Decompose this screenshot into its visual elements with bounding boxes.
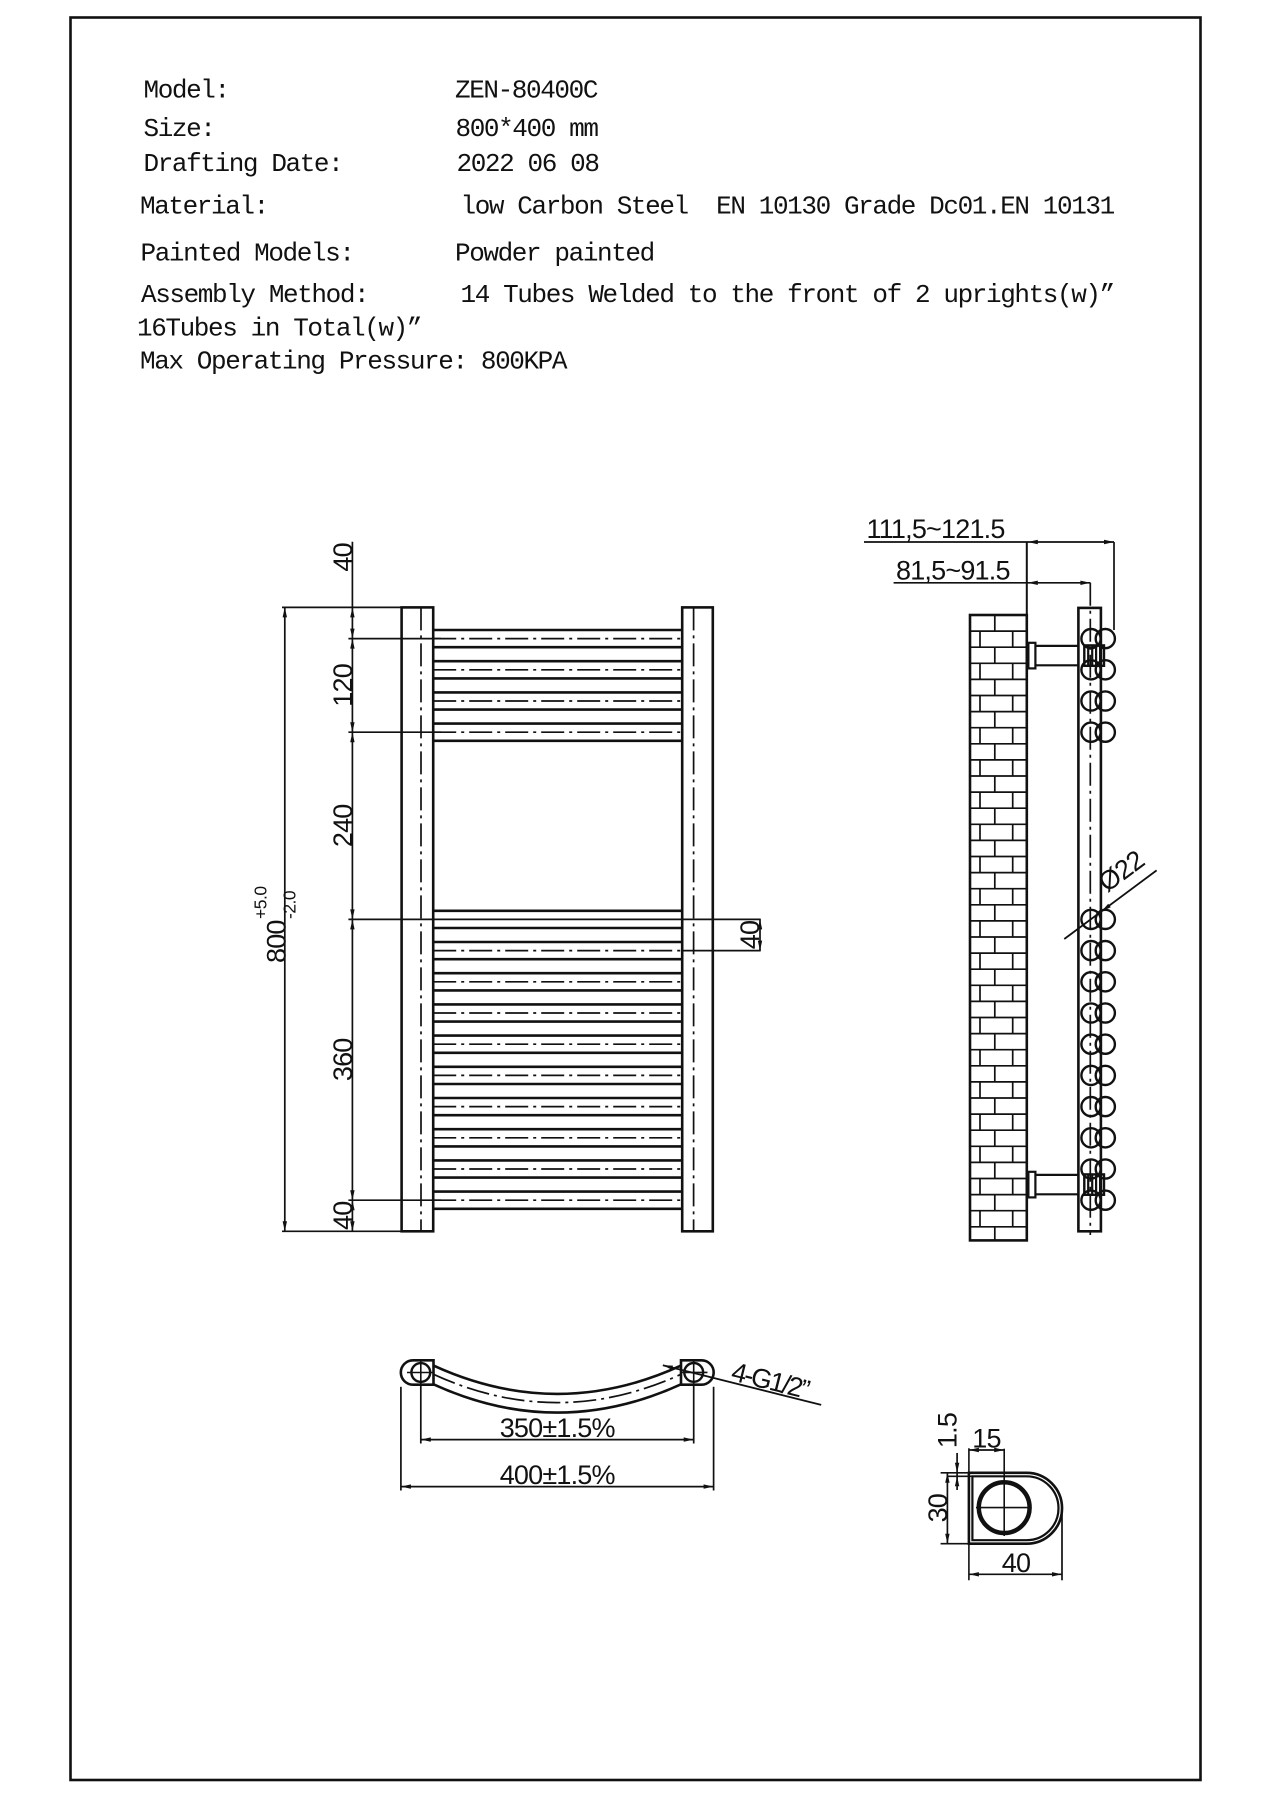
svg-text:40: 40 — [328, 543, 358, 571]
svg-text:40: 40 — [1002, 1548, 1030, 1578]
svg-text:30: 30 — [923, 1494, 953, 1522]
svg-text:2022 06 08: 2022 06 08 — [457, 149, 599, 179]
svg-text:40: 40 — [735, 921, 765, 949]
svg-text:low Carbon Steel EN 10130 Gra: low Carbon Steel EN 10130 Grade Dc01.EN … — [461, 192, 1115, 222]
svg-text:Painted Models:: Painted Models: — [141, 239, 354, 269]
svg-text:16Tubes in Total(w)”: 16Tubes in Total(w)” — [137, 314, 421, 344]
svg-text:350±1.5%: 350±1.5% — [500, 1413, 616, 1443]
svg-text:1.5: 1.5 — [932, 1413, 962, 1448]
svg-text:Drafting Date:: Drafting Date: — [144, 149, 343, 179]
svg-text:14 Tubes Welded to the front o: 14 Tubes Welded to the front of 2 uprigh… — [461, 280, 1114, 310]
svg-text:40: 40 — [328, 1202, 358, 1230]
svg-text:240: 240 — [328, 804, 358, 847]
svg-text:4-G1/2”: 4-G1/2” — [729, 1357, 812, 1405]
svg-text:120: 120 — [328, 664, 358, 707]
svg-text:Powder painted: Powder painted — [455, 239, 654, 269]
svg-text:15: 15 — [972, 1424, 1000, 1454]
svg-text:400±1.5%: 400±1.5% — [500, 1460, 616, 1490]
svg-text:81,5~91.5: 81,5~91.5 — [896, 556, 1010, 586]
svg-text:Size:: Size: — [144, 114, 215, 144]
svg-text:Material:: Material: — [140, 192, 268, 222]
svg-text:ZEN-80400C: ZEN-80400C — [455, 76, 598, 106]
svg-text:Assembly Method:: Assembly Method: — [141, 280, 368, 310]
svg-text:Model:: Model: — [144, 76, 229, 106]
svg-text:360: 360 — [328, 1038, 358, 1081]
svg-text:Max Operating Pressure: 800KPA: Max Operating Pressure: 800KPA — [140, 346, 568, 376]
svg-text:800*400 mm: 800*400 mm — [456, 114, 599, 144]
svg-text:-2.0: -2.0 — [280, 890, 300, 919]
svg-text:111,5~121.5: 111,5~121.5 — [867, 514, 1005, 544]
svg-text:+5.0: +5.0 — [251, 886, 271, 919]
svg-text:800: 800 — [262, 920, 292, 963]
